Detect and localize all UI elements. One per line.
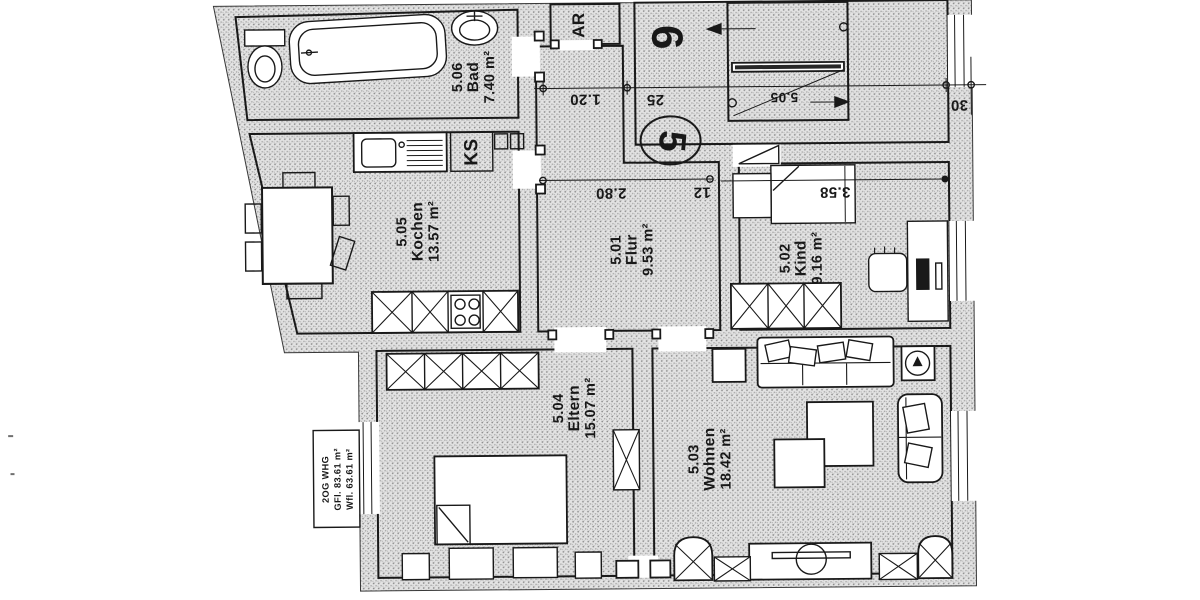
door-bad bbox=[512, 31, 544, 81]
dim-wall-25: 25 bbox=[646, 91, 664, 108]
fridge-label-ks: KS bbox=[461, 138, 482, 165]
kochen-number: 5.05 bbox=[394, 217, 410, 247]
info-line-3: Wfl. 63.61 m² bbox=[344, 448, 355, 509]
door-kind bbox=[733, 144, 781, 166]
storage-label-ar: AR bbox=[569, 12, 588, 38]
wohnen-tv-stand bbox=[749, 543, 871, 580]
door-eltern bbox=[548, 327, 613, 353]
kind-number: 5.02 bbox=[778, 243, 794, 273]
info-line-1: 2OG WHG bbox=[320, 456, 330, 503]
door-kochen bbox=[513, 145, 545, 193]
eltern-name: Eltern bbox=[566, 385, 583, 431]
window-eltern bbox=[357, 422, 380, 514]
flur-area: 9.53 m² bbox=[640, 223, 656, 276]
bad-area: 7.40 m² bbox=[482, 50, 498, 103]
window-wohnen bbox=[951, 411, 978, 501]
kind-name: Kind bbox=[792, 240, 809, 276]
bad-number: 5.06 bbox=[450, 62, 466, 92]
dim-wall-30: 30 bbox=[950, 96, 968, 113]
bath-sink bbox=[451, 11, 497, 45]
wohnen-stool bbox=[712, 349, 745, 382]
unit-number-5: 5 bbox=[650, 129, 694, 154]
dim-kind-width: 3.58 bbox=[820, 183, 851, 200]
floor-plan-page: 5.06 Bad 7.40 m² 5.05 Kochen 13.57 m² 5.… bbox=[0, 0, 1200, 600]
wohnen-plant bbox=[901, 346, 934, 380]
wohnen-number: 5.03 bbox=[686, 444, 702, 474]
unit-number-6: 6 bbox=[642, 25, 691, 50]
flur-number: 5.01 bbox=[608, 235, 624, 265]
dim-wall-12: 12 bbox=[693, 184, 711, 201]
dim-hall-width: 1.20 bbox=[570, 90, 601, 107]
kochen-name: Kochen bbox=[409, 202, 427, 261]
dim-flur-width: 2.80 bbox=[596, 184, 627, 201]
bad-name: Bad bbox=[465, 62, 482, 93]
kind-wardrobe bbox=[731, 283, 841, 329]
kitchen-counter-sink bbox=[354, 132, 447, 172]
kitchen-counter-stove bbox=[372, 291, 518, 333]
wohnen-name: Wohnen bbox=[701, 427, 719, 490]
toilet bbox=[245, 30, 286, 88]
eltern-number: 5.04 bbox=[551, 393, 567, 423]
eltern-wardrobe bbox=[386, 353, 538, 390]
eltern-side-cabinet bbox=[613, 430, 640, 490]
kochen-area: 13.57 m² bbox=[426, 201, 443, 262]
scan-artifacts bbox=[8, 435, 14, 475]
floor-plan-canvas: 5.06 Bad 7.40 m² 5.05 Kochen 13.57 m² 5.… bbox=[0, 0, 1200, 600]
kind-area: 9.16 m² bbox=[809, 232, 825, 285]
door-wohnen bbox=[652, 326, 713, 352]
info-line-2: GFl. 83.61 m² bbox=[332, 448, 343, 510]
wohnen-armchair bbox=[898, 394, 943, 482]
wohnen-sofa bbox=[757, 336, 893, 387]
bathtub bbox=[288, 13, 447, 84]
stair-label: 5.05 bbox=[770, 90, 798, 105]
kind-desk bbox=[907, 221, 948, 321]
wohnen-area: 18.42 m² bbox=[718, 428, 735, 489]
door-ar bbox=[551, 40, 602, 50]
eltern-area: 15.07 m² bbox=[583, 377, 600, 438]
window-kind bbox=[949, 221, 976, 301]
flur-name: Flur bbox=[623, 234, 640, 265]
window-landing bbox=[948, 15, 975, 87]
kind-chair bbox=[869, 246, 907, 291]
info-box: 2OG WHG GFl. 83.61 m² Wfl. 63.61 m² bbox=[313, 430, 360, 527]
